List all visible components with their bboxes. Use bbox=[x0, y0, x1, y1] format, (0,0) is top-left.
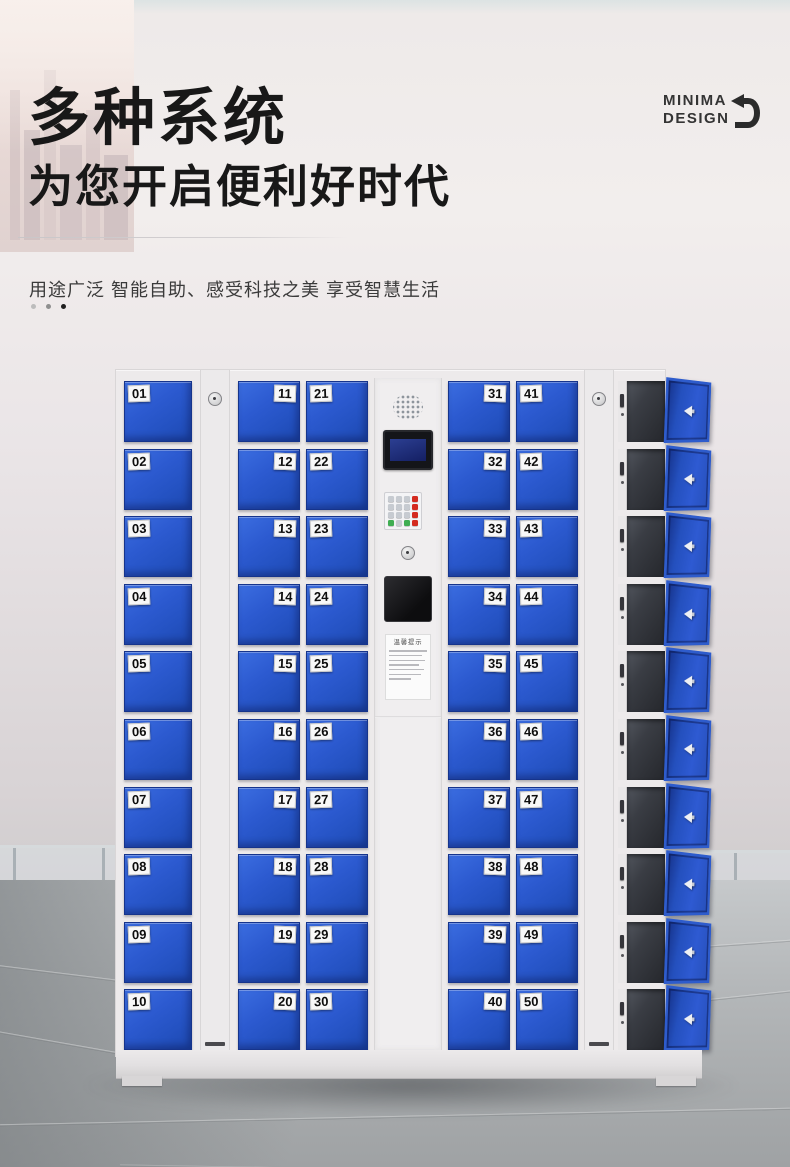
red-key bbox=[412, 496, 418, 502]
open-blue-door bbox=[664, 783, 712, 849]
locker-door-14: 14 bbox=[238, 584, 300, 645]
locker-door-09: 09 bbox=[124, 922, 192, 983]
door-number-label: 42 bbox=[520, 452, 543, 470]
locker-col-11-20: 11121314151617181920 bbox=[236, 370, 302, 1056]
locker-door-24: 24 bbox=[306, 584, 368, 645]
latch-handle-icon bbox=[620, 935, 624, 948]
key bbox=[388, 512, 394, 518]
open-compartment bbox=[618, 989, 665, 1050]
open-compartment bbox=[618, 787, 665, 848]
door-number-label: 16 bbox=[273, 723, 296, 741]
door-number-label: 23 bbox=[310, 520, 333, 538]
locker-col-31-40: 31323334353637383940 bbox=[446, 370, 512, 1056]
notice-title: 温馨提示 bbox=[391, 639, 425, 646]
green-key bbox=[404, 520, 410, 526]
locker-door-02: 02 bbox=[124, 449, 192, 510]
compartment-interior bbox=[627, 449, 665, 510]
door-number-label: 41 bbox=[520, 385, 543, 403]
door-number-label: 50 bbox=[520, 993, 543, 1011]
door-number-label: 09 bbox=[128, 925, 151, 943]
key bbox=[396, 520, 402, 526]
compartment-jamb bbox=[618, 922, 627, 983]
locker-door-45: 45 bbox=[516, 651, 578, 712]
compartment-interior bbox=[627, 719, 665, 780]
locker-door-01: 01 bbox=[124, 381, 192, 442]
door-latch-icon bbox=[684, 473, 693, 485]
door-number-label: 29 bbox=[310, 925, 333, 943]
keyhole-icon bbox=[621, 954, 624, 957]
compartment-jamb bbox=[618, 381, 627, 442]
door-number-label: 03 bbox=[128, 520, 151, 538]
cam-lock-icon bbox=[592, 392, 606, 406]
locker-door-31: 31 bbox=[448, 381, 510, 442]
door-number-label: 25 bbox=[310, 655, 333, 673]
brand-line1: MINIMA bbox=[663, 92, 730, 110]
locker-door-50: 50 bbox=[516, 989, 578, 1050]
locker-door-41: 41 bbox=[516, 381, 578, 442]
cam-lock-strip bbox=[200, 370, 230, 1056]
key bbox=[396, 512, 402, 518]
door-latch-icon bbox=[684, 405, 693, 417]
locker-door-47: 47 bbox=[516, 787, 578, 848]
open-blue-door bbox=[664, 445, 712, 511]
key bbox=[404, 512, 410, 518]
keyhole-icon bbox=[621, 413, 624, 416]
door-number-label: 39 bbox=[483, 925, 506, 943]
door-number-label: 49 bbox=[520, 925, 543, 943]
open-compartment bbox=[618, 381, 665, 442]
locker-door-46: 46 bbox=[516, 719, 578, 780]
door-number-label: 34 bbox=[483, 587, 506, 605]
door-latch-icon bbox=[684, 811, 693, 823]
door-number-label: 40 bbox=[483, 993, 506, 1011]
locker-door-13: 13 bbox=[238, 516, 300, 577]
keyhole-icon bbox=[621, 616, 624, 619]
door-number-label: 38 bbox=[483, 858, 506, 876]
panel-lock-icon bbox=[401, 546, 415, 560]
door-number-label: 32 bbox=[483, 452, 506, 470]
door-latch-icon bbox=[684, 676, 693, 688]
locker-door-44: 44 bbox=[516, 584, 578, 645]
compartment-jamb bbox=[618, 787, 627, 848]
compartment-jamb bbox=[618, 989, 627, 1050]
compartment-interior bbox=[627, 787, 665, 848]
headline-line1: 多种系统 bbox=[28, 86, 288, 152]
decorative-dots bbox=[31, 296, 76, 314]
door-number-label: 10 bbox=[128, 993, 151, 1011]
door-number-label: 17 bbox=[273, 790, 296, 808]
door-number-label: 37 bbox=[483, 790, 506, 808]
compartment-jamb bbox=[618, 719, 627, 780]
locker-col-01-10: 01020304050607080910 bbox=[122, 370, 194, 1056]
promo-banner: 多种系统 为您开启便利好时代 用途广泛 智能自助、感受科技之美 享受智慧生活 M… bbox=[0, 0, 790, 1167]
smart-locker-cabinet: 温馨提示 01020304050607080910111213141516171… bbox=[116, 370, 665, 1056]
door-number-label: 44 bbox=[520, 587, 543, 605]
compartment-interior bbox=[627, 516, 665, 577]
door-number-label: 48 bbox=[520, 858, 543, 876]
door-number-label: 08 bbox=[128, 858, 151, 876]
locker-door-25: 25 bbox=[306, 651, 368, 712]
latch-handle-icon bbox=[620, 394, 624, 407]
open-blue-door bbox=[664, 580, 712, 646]
door-number-label: 47 bbox=[520, 790, 543, 808]
locker-door-30: 30 bbox=[306, 989, 368, 1050]
door-number-label: 24 bbox=[310, 587, 333, 605]
locker-door-16: 16 bbox=[238, 719, 300, 780]
latch-handle-icon bbox=[620, 597, 624, 610]
door-number-label: 15 bbox=[273, 655, 296, 673]
door-latch-icon bbox=[684, 946, 693, 958]
red-key bbox=[412, 504, 418, 510]
key bbox=[404, 504, 410, 510]
door-number-label: 04 bbox=[128, 587, 151, 605]
locker-door-28: 28 bbox=[306, 854, 368, 915]
compartment-jamb bbox=[618, 449, 627, 510]
locker-col-41-50: 41424344454647484950 bbox=[514, 370, 580, 1056]
door-number-label: 20 bbox=[273, 993, 296, 1011]
open-compartment bbox=[618, 719, 665, 780]
keyhole-icon bbox=[621, 683, 624, 686]
locker-door-32: 32 bbox=[448, 449, 510, 510]
keyhole-icon bbox=[621, 481, 624, 484]
open-compartment bbox=[618, 854, 665, 915]
open-blue-door bbox=[664, 850, 712, 916]
latch-handle-icon bbox=[620, 664, 624, 677]
locker-door-05: 05 bbox=[124, 651, 192, 712]
door-number-label: 45 bbox=[520, 655, 543, 673]
door-number-label: 14 bbox=[273, 587, 296, 605]
door-latch-icon bbox=[684, 743, 693, 755]
door-number-label: 06 bbox=[128, 723, 151, 741]
keypad bbox=[384, 492, 422, 530]
locker-door-07: 07 bbox=[124, 787, 192, 848]
compartment-jamb bbox=[618, 651, 627, 712]
keyhole-icon bbox=[621, 886, 624, 889]
door-number-label: 02 bbox=[128, 452, 151, 470]
cam-lock-strip bbox=[584, 370, 614, 1056]
speaker-grille-icon bbox=[393, 394, 423, 420]
locker-door-20: 20 bbox=[238, 989, 300, 1050]
door-number-label: 28 bbox=[310, 858, 333, 876]
locker-door-27: 27 bbox=[306, 787, 368, 848]
door-number-label: 13 bbox=[273, 520, 296, 538]
compartment-interior bbox=[627, 922, 665, 983]
compartment-jamb bbox=[618, 854, 627, 915]
locker-door-21: 21 bbox=[306, 381, 368, 442]
door-number-label: 46 bbox=[520, 723, 543, 741]
brand-line2: DESIGN bbox=[663, 110, 730, 128]
locker-door-22: 22 bbox=[306, 449, 368, 510]
compartment-interior bbox=[627, 854, 665, 915]
locker-door-36: 36 bbox=[448, 719, 510, 780]
locker-door-17: 17 bbox=[238, 787, 300, 848]
door-number-label: 19 bbox=[273, 925, 296, 943]
latch-handle-icon bbox=[620, 732, 624, 745]
key bbox=[388, 496, 394, 502]
locker-door-08: 08 bbox=[124, 854, 192, 915]
door-number-label: 18 bbox=[273, 858, 296, 876]
locker-door-39: 39 bbox=[448, 922, 510, 983]
headline-line2: 为您开启便利好时代 bbox=[28, 162, 451, 212]
return-arrow-icon bbox=[727, 92, 761, 135]
open-compartment bbox=[618, 651, 665, 712]
keyhole-icon bbox=[621, 548, 624, 551]
compartment-interior bbox=[627, 584, 665, 645]
control-panel: 温馨提示 bbox=[374, 378, 442, 1050]
open-compartment bbox=[618, 922, 665, 983]
locker-door-35: 35 bbox=[448, 651, 510, 712]
locker-door-48: 48 bbox=[516, 854, 578, 915]
door-latch-icon bbox=[684, 1014, 693, 1026]
open-blue-door bbox=[664, 512, 712, 578]
key bbox=[404, 496, 410, 502]
door-number-label: 22 bbox=[310, 452, 333, 470]
locker-door-15: 15 bbox=[238, 651, 300, 712]
open-blue-door bbox=[664, 918, 712, 984]
door-number-label: 01 bbox=[128, 385, 151, 403]
compartment-jamb bbox=[618, 516, 627, 577]
door-number-label: 07 bbox=[128, 790, 151, 808]
key bbox=[388, 504, 394, 510]
locker-door-34: 34 bbox=[448, 584, 510, 645]
scanner-window bbox=[384, 576, 432, 622]
locker-door-40: 40 bbox=[448, 989, 510, 1050]
locker-door-23: 23 bbox=[306, 516, 368, 577]
cam-lock-icon bbox=[208, 392, 222, 406]
compartment-jamb bbox=[618, 584, 627, 645]
locker-door-12: 12 bbox=[238, 449, 300, 510]
locker-door-43: 43 bbox=[516, 516, 578, 577]
door-latch-icon bbox=[684, 878, 693, 890]
keyhole-icon bbox=[621, 819, 624, 822]
header-divider bbox=[18, 237, 348, 238]
locker-door-06: 06 bbox=[124, 719, 192, 780]
door-number-label: 36 bbox=[483, 723, 506, 741]
locker-door-11: 11 bbox=[238, 381, 300, 442]
open-blue-door bbox=[664, 986, 712, 1052]
open-blue-door bbox=[664, 377, 712, 443]
door-number-label: 27 bbox=[310, 790, 333, 808]
locker-door-04: 04 bbox=[124, 584, 192, 645]
key bbox=[396, 504, 402, 510]
latch-handle-icon bbox=[620, 462, 624, 475]
door-number-label: 26 bbox=[310, 723, 333, 741]
open-blue-door bbox=[664, 715, 712, 781]
latch-handle-icon bbox=[620, 1002, 624, 1015]
locker-door-33: 33 bbox=[448, 516, 510, 577]
locker-door-03: 03 bbox=[124, 516, 192, 577]
latch-handle-icon bbox=[620, 529, 624, 542]
subtitle-text: 用途广泛 智能自助、感受科技之美 享受智慧生活 bbox=[29, 276, 440, 302]
red-key bbox=[412, 512, 418, 518]
door-number-label: 05 bbox=[128, 655, 151, 673]
open-blue-door bbox=[664, 648, 712, 714]
door-latch-icon bbox=[684, 540, 693, 552]
door-number-label: 35 bbox=[483, 655, 506, 673]
locker-door-10: 10 bbox=[124, 989, 192, 1050]
open-compartment bbox=[618, 516, 665, 577]
green-key bbox=[388, 520, 394, 526]
notice-sticker: 温馨提示 bbox=[385, 634, 431, 700]
locker-col-21-30: 21222324252627282930 bbox=[304, 370, 370, 1056]
door-latch-icon bbox=[684, 608, 693, 620]
open-compartment bbox=[618, 584, 665, 645]
compartment-interior bbox=[627, 381, 665, 442]
latch-handle-icon bbox=[620, 800, 624, 813]
door-number-label: 43 bbox=[520, 520, 543, 538]
compartment-interior bbox=[627, 651, 665, 712]
locker-door-19: 19 bbox=[238, 922, 300, 983]
door-number-label: 12 bbox=[273, 452, 296, 470]
locker-door-37: 37 bbox=[448, 787, 510, 848]
locker-door-26: 26 bbox=[306, 719, 368, 780]
key bbox=[396, 496, 402, 502]
brand-logo-text: MINIMA DESIGN bbox=[663, 92, 730, 128]
locker-door-42: 42 bbox=[516, 449, 578, 510]
door-number-label: 21 bbox=[310, 385, 333, 403]
keyhole-icon bbox=[621, 751, 624, 754]
latch-handle-icon bbox=[620, 867, 624, 880]
locker-door-38: 38 bbox=[448, 854, 510, 915]
cabinet-base bbox=[116, 1050, 702, 1078]
lcd-screen bbox=[383, 430, 433, 470]
red-key bbox=[412, 520, 418, 526]
door-number-label: 33 bbox=[483, 520, 506, 538]
open-compartment bbox=[618, 449, 665, 510]
locker-door-49: 49 bbox=[516, 922, 578, 983]
locker-door-18: 18 bbox=[238, 854, 300, 915]
locker-door-29: 29 bbox=[306, 922, 368, 983]
door-number-label: 11 bbox=[274, 385, 296, 403]
compartment-interior bbox=[627, 989, 665, 1050]
door-number-label: 31 bbox=[483, 385, 506, 403]
door-number-label: 30 bbox=[310, 993, 333, 1011]
keyhole-icon bbox=[621, 1021, 624, 1024]
